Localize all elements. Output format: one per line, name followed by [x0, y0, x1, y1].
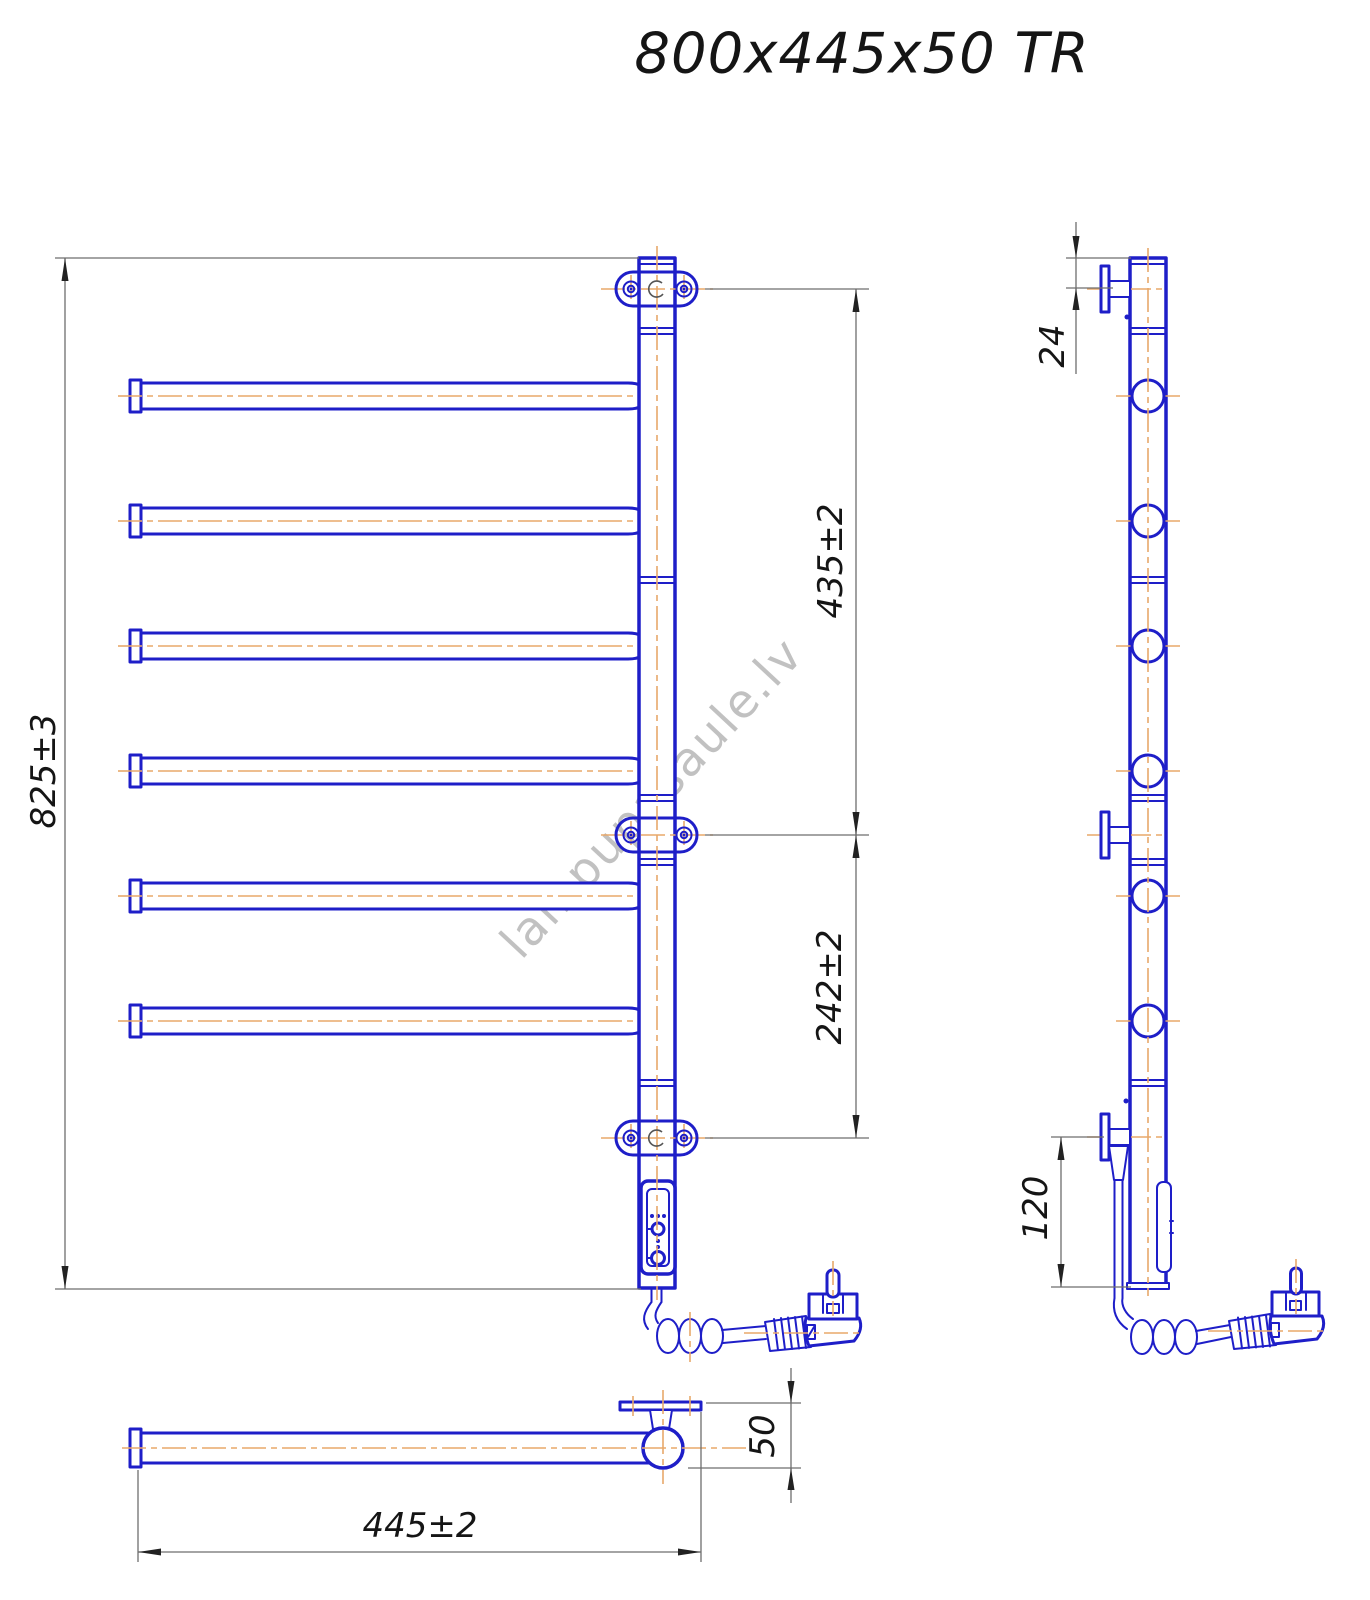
- towel-bar: [118, 755, 652, 787]
- power-cord: [644, 1288, 766, 1362]
- side-control-unit: [1157, 1182, 1173, 1272]
- dim-label-lower-section: 242±2: [810, 929, 850, 1044]
- dim-label-bracket-top-offset: 24: [1033, 324, 1073, 367]
- technical-drawing-svg: [0, 0, 1370, 1600]
- side-view: [1087, 248, 1325, 1354]
- control-unit: [641, 1181, 675, 1274]
- towel-bar: [118, 380, 652, 412]
- power-plug: [744, 1261, 862, 1351]
- dim-label-overall-width: 445±2: [362, 1506, 477, 1546]
- dim-label-rail-depth: 50: [743, 1414, 783, 1457]
- bottom-wall-plate: [620, 1402, 701, 1410]
- towel-bar: [118, 630, 652, 662]
- technical-drawing-page: lampupasaule.lv: [0, 0, 1370, 1600]
- towel-bar: [118, 880, 652, 912]
- dim-label-bracket-bottom-offset: 120: [1016, 1176, 1056, 1241]
- front-view: [118, 246, 862, 1362]
- drawing-title: 800x445x50 TR: [634, 22, 1089, 87]
- dim-label-overall-height: 825±3: [24, 713, 64, 828]
- bottom-view: [122, 1390, 748, 1484]
- side-power-plug: [1208, 1259, 1325, 1349]
- towel-bars: [118, 380, 652, 1037]
- dim-label-upper-section: 435±2: [811, 503, 851, 618]
- towel-bar: [118, 505, 652, 537]
- towel-bar: [118, 1005, 652, 1037]
